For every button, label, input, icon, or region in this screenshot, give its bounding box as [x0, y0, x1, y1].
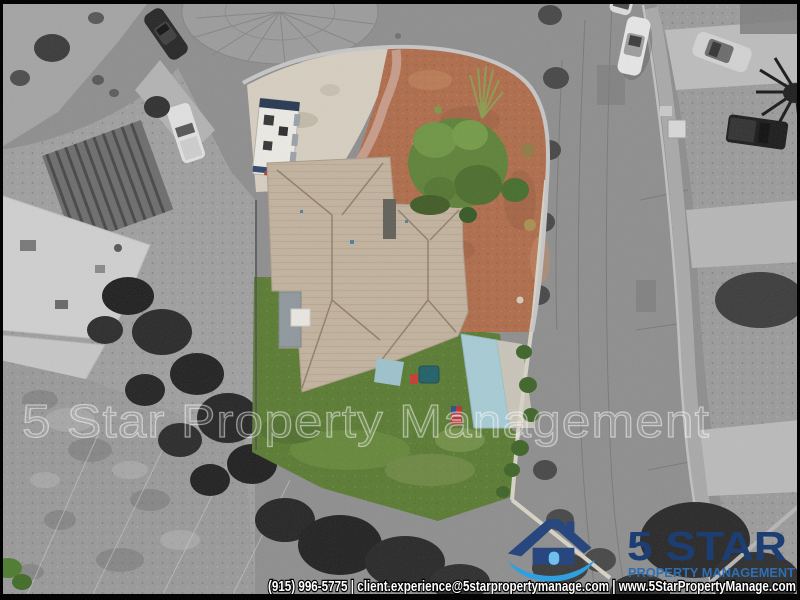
footer-contact-line: (915) 996-5775 | client.experience@5star…	[268, 578, 796, 595]
watermark-text: 5 Star Property Management	[22, 395, 710, 447]
aerial-scene: 5 Star Property Management 5 STAR PROPER…	[0, 0, 800, 600]
photo-grain	[0, 0, 800, 600]
logo-brand-text: 5 STAR	[627, 523, 787, 569]
aerial-property-photo: 5 Star Property Management 5 STAR PROPER…	[0, 0, 800, 600]
